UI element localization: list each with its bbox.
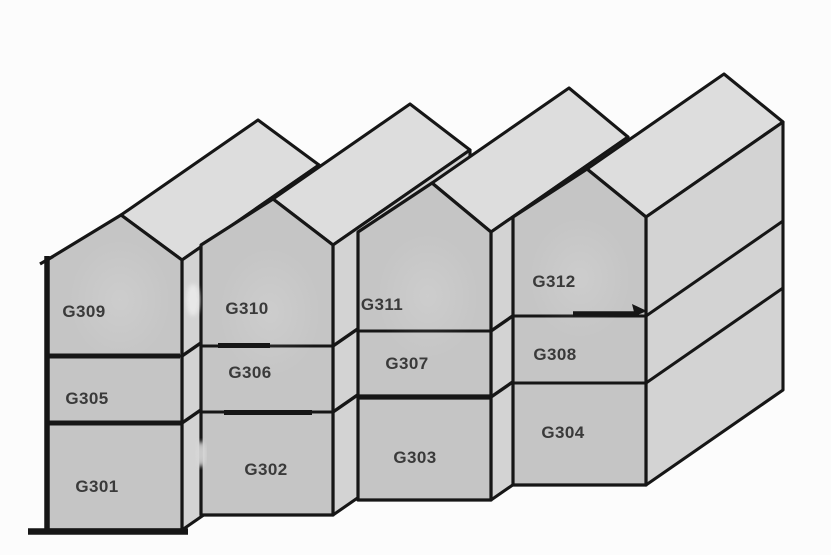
unit-label-G307: G307 — [385, 354, 428, 373]
face-shading — [68, 238, 172, 362]
unit-label-G310: G310 — [225, 299, 268, 318]
unit-label-G301: G301 — [75, 477, 118, 496]
unit-label-G302: G302 — [244, 460, 287, 479]
unit-label-G312: G312 — [532, 272, 575, 291]
diagram-canvas: G309G305G301G310G306G302G311G307G303G312… — [0, 0, 831, 555]
unit-label-G309: G309 — [62, 302, 105, 321]
unit-label-G306: G306 — [228, 363, 271, 382]
unit-label-G303: G303 — [393, 448, 436, 467]
unit-label-G305: G305 — [65, 389, 108, 408]
unit-label-G304: G304 — [541, 423, 584, 442]
eraser-smudge — [186, 284, 200, 316]
isometric-units-diagram: G309G305G301G310G306G302G311G307G303G312… — [0, 0, 831, 555]
unit-label-G308: G308 — [533, 345, 576, 364]
unit-label-G311: G311 — [361, 295, 403, 314]
eraser-smudge — [196, 441, 206, 467]
